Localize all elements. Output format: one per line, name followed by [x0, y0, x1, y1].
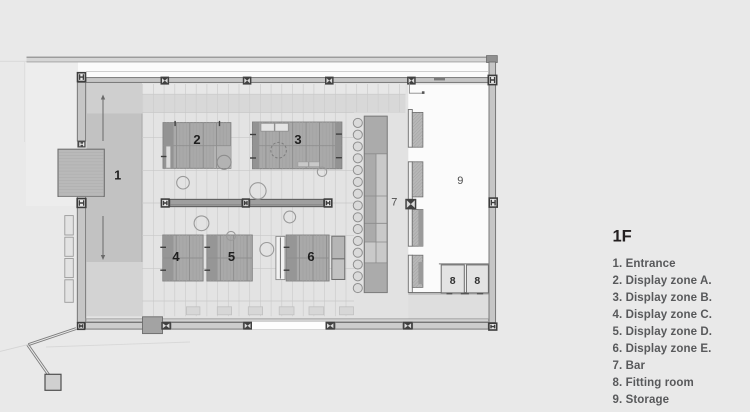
svg-text:7: 7 — [391, 196, 397, 208]
svg-text:3: 3 — [294, 132, 301, 147]
svg-text:9: 9 — [457, 175, 463, 187]
svg-text:1. Entrance: 1. Entrance — [613, 258, 676, 270]
svg-text:1: 1 — [114, 169, 121, 183]
svg-text:8. Fitting room: 8. Fitting room — [613, 377, 694, 389]
svg-text:6: 6 — [307, 249, 314, 264]
svg-text:2. Display zone A.: 2. Display zone A. — [613, 275, 712, 287]
svg-text:5: 5 — [228, 249, 235, 264]
svg-text:3. Display zone B.: 3. Display zone B. — [613, 292, 713, 304]
svg-text:6. Display zone E.: 6. Display zone E. — [613, 343, 712, 355]
svg-text:8: 8 — [450, 275, 456, 287]
svg-text:5. Display zone D.: 5. Display zone D. — [613, 326, 713, 338]
svg-text:4: 4 — [172, 249, 180, 264]
svg-text:4. Display zone C.: 4. Display zone C. — [613, 309, 713, 321]
svg-text:7. Bar: 7. Bar — [613, 360, 646, 372]
svg-text:1F: 1F — [613, 228, 632, 246]
svg-text:2: 2 — [193, 132, 200, 147]
svg-text:9. Storage: 9. Storage — [613, 394, 670, 406]
svg-text:8: 8 — [474, 275, 480, 287]
